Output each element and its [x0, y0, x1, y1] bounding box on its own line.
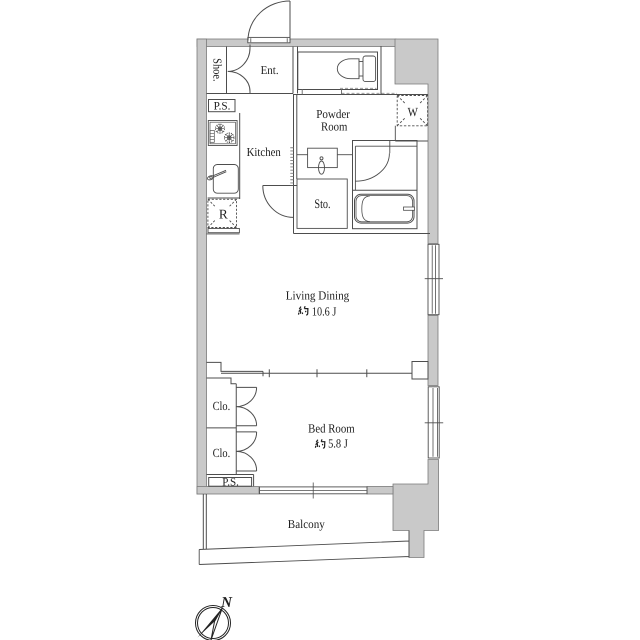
- svg-text:Living Dining: Living Dining: [286, 289, 350, 303]
- svg-text:R: R: [219, 207, 228, 222]
- svg-text:P.S.: P.S.: [222, 477, 239, 489]
- svg-text:Room: Room: [321, 120, 348, 134]
- svg-text:Bed Room: Bed Room: [308, 422, 355, 436]
- svg-text:P.S.: P.S.: [214, 100, 231, 112]
- svg-text:W: W: [408, 105, 419, 119]
- svg-text:Sto.: Sto.: [314, 196, 330, 211]
- svg-text:Balcony: Balcony: [288, 517, 325, 531]
- svg-text:Shoe.: Shoe.: [211, 58, 225, 82]
- svg-text:5.8 J: 5.8 J: [328, 437, 348, 451]
- svg-text:Ent.: Ent.: [261, 63, 279, 77]
- svg-text:Kitchen: Kitchen: [247, 145, 281, 159]
- svg-text:N: N: [220, 595, 233, 611]
- svg-text:Clo.: Clo.: [213, 446, 231, 460]
- svg-text:10.6 J: 10.6 J: [312, 304, 337, 318]
- svg-text:Clo.: Clo.: [213, 399, 231, 413]
